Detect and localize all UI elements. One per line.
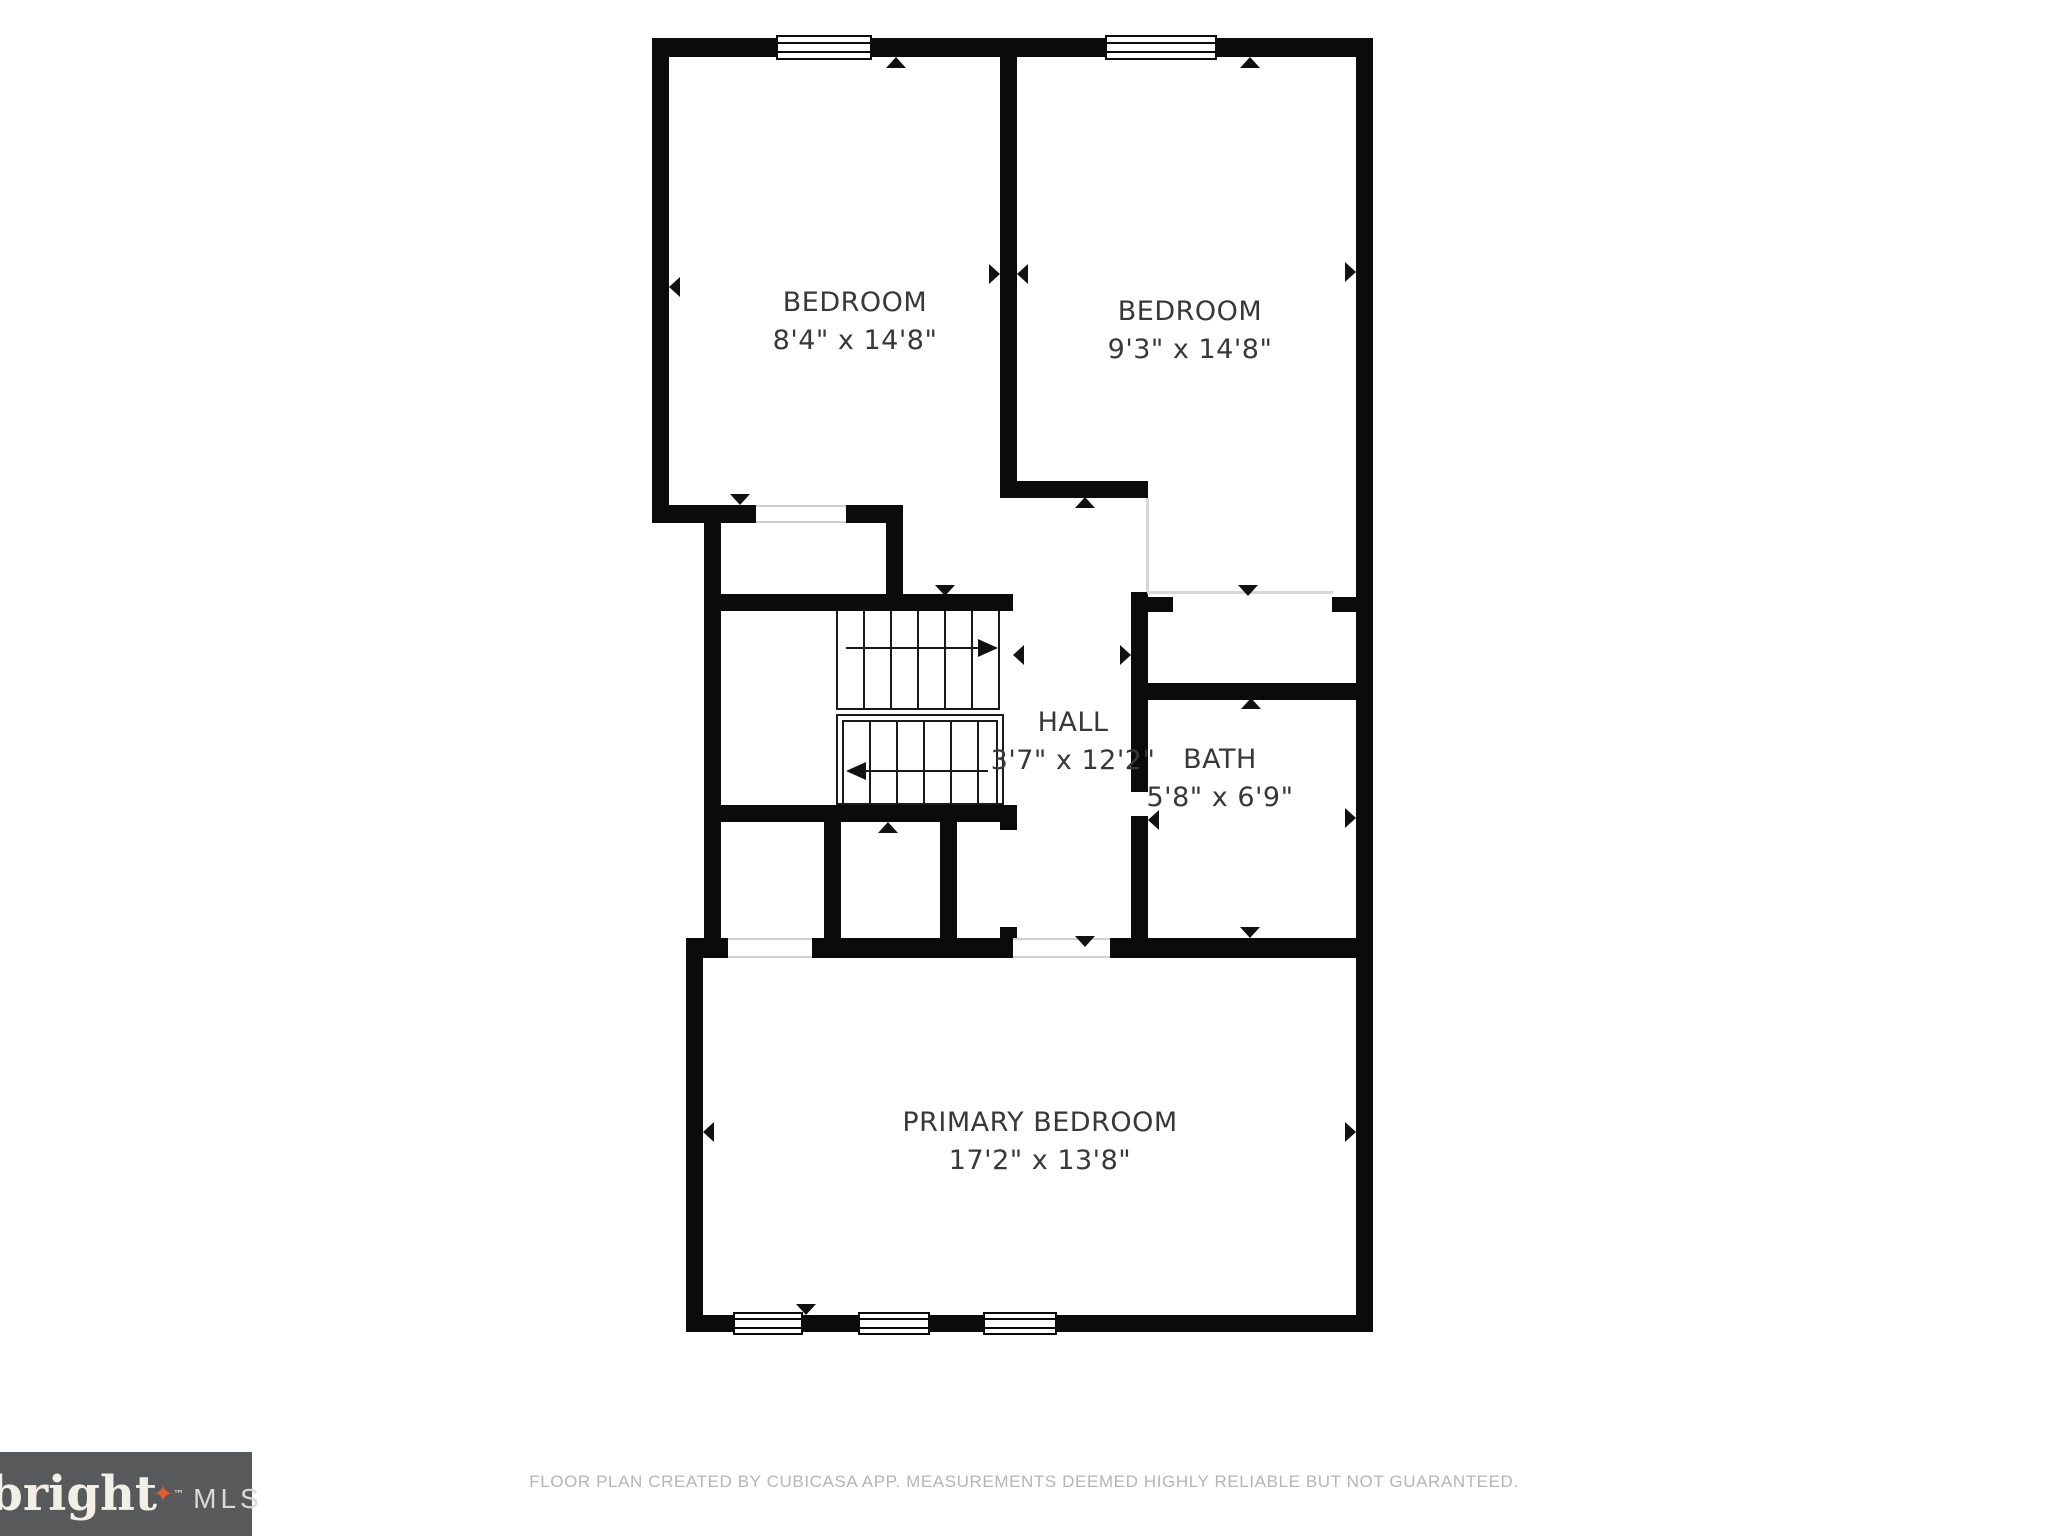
dimension-marker-icon <box>730 494 750 505</box>
room-label-bath: BATH 5'8" x 6'9" <box>1146 741 1293 817</box>
wall <box>704 505 721 945</box>
wall <box>872 38 1105 57</box>
dimension-marker-icon <box>935 585 955 596</box>
wall <box>1110 938 1356 958</box>
room-name: PRIMARY BEDROOM <box>902 1104 1177 1142</box>
dimension-marker-icon <box>989 264 1000 284</box>
door-opening <box>756 505 846 523</box>
wall <box>824 822 841 955</box>
dimension-marker-icon <box>1345 1122 1356 1142</box>
dimension-marker-icon <box>878 822 898 833</box>
room-label-hall: HALL 3'7" x 12'2" <box>991 704 1156 780</box>
room-dimensions: 3'7" x 12'2" <box>991 742 1156 780</box>
door-opening <box>1013 938 1110 958</box>
stairs-down-arrow <box>866 770 988 772</box>
stairs-down-arrowhead-icon <box>846 762 866 780</box>
room-dimensions: 17'2" x 13'8" <box>902 1142 1177 1180</box>
room-name: BEDROOM <box>1108 293 1273 331</box>
window-glyph <box>983 1312 1057 1335</box>
dimension-marker-icon <box>1240 927 1260 938</box>
dimension-marker-icon <box>886 57 906 68</box>
wall <box>1000 805 1017 830</box>
wall <box>1000 481 1148 498</box>
wall <box>1148 597 1173 612</box>
window-glyph <box>858 1312 930 1335</box>
dimension-marker-icon <box>1241 698 1261 709</box>
dimension-marker-icon <box>1345 808 1356 828</box>
room-name: BEDROOM <box>773 284 938 322</box>
room-dimensions: 8'4" x 14'8" <box>773 322 938 360</box>
room-name: HALL <box>991 704 1156 742</box>
room-label-primary-bedroom: PRIMARY BEDROOM 17'2" x 13'8" <box>902 1104 1177 1180</box>
floor-plan: BEDROOM 8'4" x 14'8" BEDROOM 9'3" x 14'8… <box>0 0 2048 1536</box>
dimension-marker-icon <box>1075 497 1095 508</box>
wall <box>652 38 669 523</box>
dimension-marker-icon <box>1075 936 1095 947</box>
dimension-marker-icon <box>1345 262 1356 282</box>
room-dimensions: 9'3" x 14'8" <box>1108 331 1273 369</box>
wall <box>1217 38 1373 57</box>
dimension-marker-icon <box>1238 585 1258 596</box>
dimension-marker-icon <box>669 277 680 297</box>
window-glyph <box>733 1312 803 1335</box>
wall <box>686 1315 733 1332</box>
wall <box>803 1315 858 1332</box>
dimension-marker-icon <box>703 1122 714 1142</box>
wall <box>1057 1315 1373 1332</box>
wall <box>652 38 776 57</box>
dimension-marker-icon <box>1013 645 1024 665</box>
wall <box>846 505 903 523</box>
room-boundary-line <box>1146 498 1149 592</box>
window-glyph <box>776 35 872 60</box>
wall <box>812 938 1013 958</box>
door-opening <box>728 938 812 958</box>
stairs-up-arrow <box>846 647 980 649</box>
wall <box>1356 38 1373 1332</box>
wall <box>704 805 1013 822</box>
wall <box>940 822 957 955</box>
door-opening <box>1131 792 1148 816</box>
dimension-marker-icon <box>1120 645 1131 665</box>
dimension-marker-icon <box>1017 264 1028 284</box>
brand-logo: bright✦™ MLS <box>0 1452 252 1536</box>
wall <box>721 594 1013 611</box>
room-label-bedroom2: BEDROOM 9'3" x 14'8" <box>1108 293 1273 369</box>
room-name: BATH <box>1146 741 1293 779</box>
wall <box>1000 57 1017 498</box>
window-glyph <box>1105 35 1217 60</box>
wall <box>1332 597 1356 612</box>
wall <box>930 1315 983 1332</box>
room-dimensions: 5'8" x 6'9" <box>1146 779 1293 817</box>
dimension-marker-icon <box>796 1304 816 1315</box>
disclaimer-text: FLOOR PLAN CREATED BY CUBICASA APP. MEAS… <box>0 1472 2048 1492</box>
dimension-marker-icon <box>1240 57 1260 68</box>
wall <box>1131 816 1148 955</box>
stairs-up-arrowhead-icon <box>978 639 998 657</box>
door-opening <box>1000 830 1017 927</box>
room-label-bedroom1: BEDROOM 8'4" x 14'8" <box>773 284 938 360</box>
wall <box>686 938 703 1332</box>
